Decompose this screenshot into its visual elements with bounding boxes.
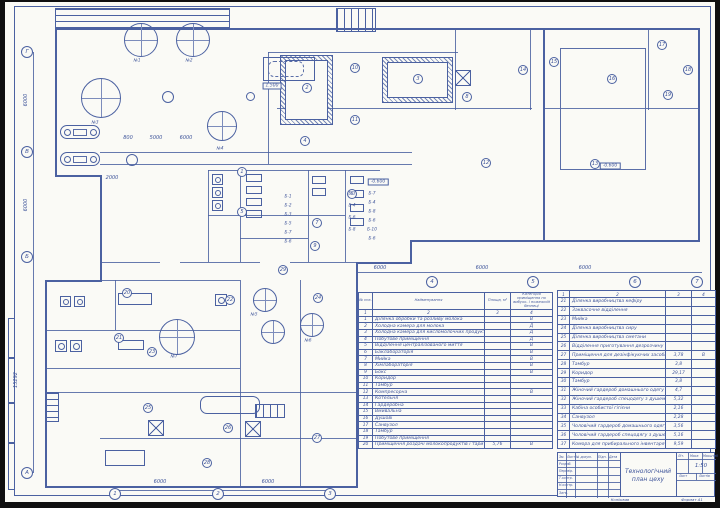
table-cell: 2,28 xyxy=(666,413,692,422)
tank xyxy=(159,319,195,355)
table-cell: Санвузол xyxy=(570,413,666,422)
table-cell: Тамбур xyxy=(570,378,666,387)
scale-label: Масштаб xyxy=(703,454,718,458)
table-cell: Побутове приміщення xyxy=(373,336,485,343)
table-cell: Побутове приміщення xyxy=(373,435,485,442)
stamp-line xyxy=(558,482,620,483)
room-outline xyxy=(560,48,646,170)
table-cell xyxy=(692,333,716,342)
grid-axis-marker: 6 xyxy=(629,276,641,288)
wall-segment xyxy=(180,262,260,263)
table-cell xyxy=(511,422,553,429)
washer xyxy=(212,200,223,211)
table1-body: 1Ділянка обробки та розливу молокаВ2Холо… xyxy=(359,316,553,448)
sheets-label: Листів xyxy=(699,474,710,478)
table-cell: В xyxy=(511,343,553,350)
wall-segment xyxy=(290,262,358,263)
equipment-box xyxy=(350,176,364,184)
data: 5Відділення централізованого миттяВ xyxy=(359,343,553,350)
equipment-tag: Б-3 xyxy=(348,191,355,196)
tank xyxy=(176,23,210,57)
table-cell: 5,76 xyxy=(485,442,511,449)
table-cell xyxy=(692,324,716,333)
sheet-label: Лист xyxy=(679,474,687,478)
table-cell: Вмивальна xyxy=(373,409,485,416)
dimension-label: 6000 xyxy=(154,479,167,485)
eqc xyxy=(63,299,69,305)
stamp-line xyxy=(597,453,598,498)
data: 34Санвузол2,28 xyxy=(558,413,716,422)
grid-axis-marker: 7 xyxy=(691,276,703,288)
room-number-marker: 26 xyxy=(223,423,233,433)
grid-axis-marker: 1 xyxy=(109,488,121,500)
table-cell: 10 xyxy=(359,376,373,383)
equipment-tag: Б-4 xyxy=(368,200,375,205)
table-cell xyxy=(666,342,692,351)
machine-detail xyxy=(73,129,87,136)
table-cell: 2,16 xyxy=(666,404,692,413)
table-cell xyxy=(485,336,511,343)
dimension-line xyxy=(33,52,34,473)
column-number: 1 xyxy=(359,309,373,316)
table-cell xyxy=(485,356,511,363)
table-cell: Гардеробна xyxy=(373,402,485,409)
room-number-marker: 13 xyxy=(590,159,600,169)
column-number: 2 xyxy=(373,309,485,316)
dimension-label: 800 xyxy=(123,135,133,141)
grid-axis-marker: 2 xyxy=(212,488,224,500)
table-cell: 6 xyxy=(359,349,373,356)
grid-axis-marker: А xyxy=(21,467,33,479)
table1-header-cell: № поз. xyxy=(359,293,373,310)
data: 8ХімлабораторіяВ xyxy=(359,362,553,369)
data: 37Комора для прибирального інвентаря9,59 xyxy=(558,440,716,449)
dimension-label: 5000 xyxy=(150,135,163,141)
table-cell xyxy=(485,409,511,416)
table-cell: 16 xyxy=(359,415,373,422)
wall-segment xyxy=(100,280,240,281)
table-cell xyxy=(666,306,692,315)
data: 25Ділянка виробництва сметани xyxy=(558,333,716,342)
data: 33Кабіна особистої гігієни2,16 xyxy=(558,404,716,413)
wall-segment xyxy=(208,215,345,216)
washer xyxy=(70,340,82,352)
wall-segment xyxy=(45,368,240,369)
table1-header: № поз.НайменуванняПлоща, м²Категорія при… xyxy=(359,293,553,317)
wall-segment xyxy=(100,175,102,282)
tank xyxy=(124,23,158,57)
table-cell: В xyxy=(511,369,553,376)
dimension-label: 2000 xyxy=(106,175,119,181)
machine-detail xyxy=(90,156,97,163)
equipment-tank-dashed xyxy=(268,61,304,77)
washer xyxy=(212,187,223,198)
table-cell xyxy=(485,369,511,376)
eqc xyxy=(73,343,80,350)
wall-segment xyxy=(358,262,412,264)
data: 3Холодна камера для кисломолочних продук… xyxy=(359,330,553,337)
data: 18Тамбур xyxy=(359,428,553,435)
washer xyxy=(60,296,71,307)
grid-axis-marker: Б xyxy=(21,251,33,263)
grid-axis-marker: 5 xyxy=(527,276,539,288)
stamp-column-label: Дата xyxy=(609,455,617,459)
table-cell xyxy=(692,413,716,422)
data: 19Побутове приміщення xyxy=(359,435,553,442)
stairs xyxy=(336,8,376,32)
washer xyxy=(212,174,223,185)
room-number-marker: 17 xyxy=(657,40,667,50)
table-cell: Ділянка обробки та розливу молока xyxy=(373,316,485,323)
tr: № поз.НайменуванняПлоща, м²Категорія при… xyxy=(359,293,553,310)
wall-segment xyxy=(208,170,380,171)
table-cell xyxy=(666,333,692,342)
data: 28Тамбур3,8 xyxy=(558,360,716,369)
washer xyxy=(55,340,67,352)
table-cell xyxy=(511,382,553,389)
data: 17Санвузол xyxy=(359,422,553,429)
table-cell: 23 xyxy=(558,315,570,324)
table-cell xyxy=(485,316,511,323)
table-cell: Ділянка виробництва сметани xyxy=(570,333,666,342)
table-cell: В xyxy=(692,351,716,360)
table-cell: 5,16 xyxy=(666,431,692,440)
wall-segment xyxy=(240,238,308,239)
equipment-tag: Б-5 xyxy=(284,221,291,226)
table-cell xyxy=(666,324,692,333)
stamp-line xyxy=(558,475,620,476)
equipment-tag: Б-1 xyxy=(284,194,291,199)
dimension-label: 6000 xyxy=(374,265,387,271)
table-cell: 9,59 xyxy=(666,440,692,449)
room-explication-table-2: 123421Ділянка виробництва кефіру22Заквас… xyxy=(557,290,716,449)
room-number-marker: 1 xyxy=(237,167,247,177)
eqc xyxy=(58,343,65,350)
table-cell xyxy=(692,431,716,440)
room-explication-table-1: № поз.НайменуванняПлоща, м²Категорія при… xyxy=(358,292,553,449)
table-cell: Санвузол xyxy=(373,422,485,429)
column-number: 3 xyxy=(485,309,511,316)
equipment-tag: Б-4 xyxy=(348,203,355,208)
room-number-marker: 12 xyxy=(481,158,491,168)
data: 7МийкаВ xyxy=(359,356,553,363)
room-number-marker: 15 xyxy=(549,57,559,67)
equipment-box xyxy=(246,174,262,182)
frame-side-box xyxy=(8,443,15,490)
table-cell xyxy=(692,298,716,307)
wall-segment xyxy=(115,280,116,330)
equipment-tag: Б-6 xyxy=(368,218,375,223)
room-number-marker: 24 xyxy=(313,293,323,303)
table-cell: Холодна камера для кисломолочних продукт… xyxy=(373,330,485,337)
data: 13Котельня xyxy=(359,395,553,402)
equipment-tag: Б-3 xyxy=(284,212,291,217)
stamp-column-label: Зм. xyxy=(559,455,564,459)
blueprint-photo: 1234567891011121314151617181920212223242… xyxy=(0,0,720,508)
eqc xyxy=(77,299,83,305)
table-cell: 36 xyxy=(558,431,570,440)
room-number-marker: 7 xyxy=(312,218,322,228)
bath-tub xyxy=(200,396,260,414)
table-cell xyxy=(485,382,511,389)
dimension-label: 6000 xyxy=(23,199,29,212)
data: 23Мийка xyxy=(558,315,716,324)
data: 30Тамбур3,8 xyxy=(558,378,716,387)
pump xyxy=(162,91,174,103)
equipment-box xyxy=(246,186,262,194)
table-cell: Жіночий гардероб спецодягу з душем xyxy=(570,395,666,404)
table-cell xyxy=(485,362,511,369)
table-cell: Чоловічий гардероб спецодягу з душем xyxy=(570,431,666,440)
data: 10Коридор xyxy=(359,376,553,383)
table-cell xyxy=(692,369,716,378)
dimension-label: 6000 xyxy=(180,135,193,141)
stamp-line xyxy=(558,489,620,490)
data: 26Відділення приготування дезрозчину xyxy=(558,342,716,351)
table-cell: 3,8 xyxy=(666,378,692,387)
capsule-machine xyxy=(60,125,100,139)
table-cell: 30 xyxy=(558,378,570,387)
equipment-platform xyxy=(263,57,315,81)
room-number-marker: 27 xyxy=(312,433,322,443)
table-cell xyxy=(692,315,716,324)
stamp-line xyxy=(558,467,620,468)
table-cell xyxy=(511,402,553,409)
wall-segment xyxy=(698,28,700,242)
table-cell: 32 xyxy=(558,395,570,404)
stamp-line xyxy=(558,460,620,461)
table-cell xyxy=(485,349,511,356)
table-cell: Тамбур xyxy=(373,428,485,435)
table-cell: Ділянка виробництва сиру xyxy=(570,324,666,333)
column-number: 1 xyxy=(558,291,570,298)
table-cell: 3 xyxy=(359,330,373,337)
table-cell: 21 xyxy=(558,298,570,307)
table-cell xyxy=(511,409,553,416)
equipment-tag: Б-8 xyxy=(368,209,375,214)
dimension-label: 6000 xyxy=(262,479,275,485)
drawing-title: Технологічний план цеху xyxy=(620,453,676,498)
equipment-box xyxy=(312,188,326,196)
table-cell: 37 xyxy=(558,440,570,449)
table-cell: Д xyxy=(511,323,553,330)
table-cell: 22 xyxy=(558,306,570,315)
equipment-tag: Б-6 xyxy=(284,239,291,244)
table-cell xyxy=(692,360,716,369)
table-cell: 31 xyxy=(558,386,570,395)
stamp-column-label: № докум. xyxy=(576,455,592,459)
equipment-box xyxy=(246,210,262,218)
wall-segment xyxy=(45,280,102,282)
table-cell: 3,56 xyxy=(666,422,692,431)
equipment-tag: №1 xyxy=(133,58,140,63)
frame-side-box xyxy=(8,318,15,358)
table-cell xyxy=(485,422,511,429)
wall-segment xyxy=(410,240,412,264)
dimension-line xyxy=(358,272,702,273)
table-cell: В xyxy=(511,349,553,356)
drawing-title-line1: Технологічний xyxy=(625,468,671,476)
table-cell xyxy=(511,435,553,442)
dimension-label: 15292 xyxy=(13,372,19,388)
table-cell xyxy=(511,376,553,383)
table-cell xyxy=(692,378,716,387)
room-number-marker: 8 xyxy=(462,92,472,102)
capsule-machine xyxy=(60,152,100,166)
room-number-marker: 18 xyxy=(683,65,693,75)
column-number: 4 xyxy=(692,291,716,298)
table-cell: 15 xyxy=(359,409,373,416)
table-cell: 7 xyxy=(359,356,373,363)
table-cell: 18 xyxy=(359,428,373,435)
table-cell: 2 xyxy=(359,323,373,330)
wall-segment xyxy=(208,170,209,262)
table-cell: Коридор xyxy=(570,369,666,378)
elevation-mark: -0.600 xyxy=(368,179,389,186)
wall-segment xyxy=(45,280,47,488)
column-number: 2 xyxy=(570,291,666,298)
tank xyxy=(207,111,237,141)
table-cell: 26 xyxy=(558,342,570,351)
grid-axis-marker: 3 xyxy=(324,488,336,500)
stamp-column-label: Підп. xyxy=(598,455,607,459)
tr: 1234 xyxy=(558,291,716,298)
table-cell: 19 xyxy=(359,435,373,442)
table-cell: В xyxy=(511,442,553,449)
table-cell: 24 xyxy=(558,324,570,333)
table-cell: 29,17 xyxy=(666,369,692,378)
table-cell: Д xyxy=(511,336,553,343)
room-number-marker: 10 xyxy=(350,63,360,73)
machine-detail xyxy=(64,129,71,136)
table-cell: Комора для прибирального інвентаря xyxy=(570,440,666,449)
table-cell: 9 xyxy=(359,369,373,376)
table-cell: Д xyxy=(511,330,553,337)
pump xyxy=(126,154,138,166)
table1-header-cell: Площа, м² xyxy=(485,293,511,310)
pump xyxy=(246,92,255,101)
copied-label: Копіював xyxy=(611,497,630,502)
wall-segment xyxy=(308,170,309,262)
data: 29Коридор29,17 xyxy=(558,369,716,378)
table-cell: 11 xyxy=(359,382,373,389)
room-number-marker: 22 xyxy=(225,295,235,305)
frame-side-box xyxy=(8,403,15,443)
table-cell: Компресорна xyxy=(373,389,485,396)
table-cell xyxy=(485,415,511,422)
table-cell: Тамбур xyxy=(570,360,666,369)
table-cell xyxy=(692,342,716,351)
data: 1Ділянка обробки та розливу молокаВ xyxy=(359,316,553,323)
data: 14Гардеробна xyxy=(359,402,553,409)
room-number-marker: 25 xyxy=(143,403,153,413)
table-cell: 13 xyxy=(359,395,373,402)
table-cell: Хімлабораторія xyxy=(373,362,485,369)
wall-segment xyxy=(410,240,700,242)
table-cell: Ділянка виробництва кефіру xyxy=(570,298,666,307)
table-cell xyxy=(692,386,716,395)
room-number-marker: 19 xyxy=(663,90,673,100)
stamp-line xyxy=(676,480,716,481)
lit-label: Літ. xyxy=(678,454,684,458)
column-number: 3 xyxy=(666,291,692,298)
stamp-column-label: Лист xyxy=(567,455,575,459)
data: 21Ділянка виробництва кефіру xyxy=(558,298,716,307)
room-number-marker: 11 xyxy=(350,115,360,125)
table-cell: Баклабораторія xyxy=(373,349,485,356)
table-cell: 5 xyxy=(359,343,373,350)
format-label: Формат А1 xyxy=(681,497,703,502)
column-number: 4 xyxy=(511,309,553,316)
data: 6БаклабораторіяВ xyxy=(359,349,553,356)
table-cell: Душові xyxy=(373,415,485,422)
data: 9БоксВ xyxy=(359,369,553,376)
room-number-marker: 23 xyxy=(147,347,157,357)
data: 31Жіночий гардероб домашнього одягу4,7 xyxy=(558,386,716,395)
equipment-tag: Б-6 xyxy=(368,236,375,241)
table-cell xyxy=(485,389,511,396)
wall-segment xyxy=(55,175,102,177)
table-cell xyxy=(511,428,553,435)
table-cell: 29 xyxy=(558,369,570,378)
table-cell: 28 xyxy=(558,360,570,369)
table1-header-cell: Категорія приміщення по вибухо- і пожежн… xyxy=(511,293,553,310)
stairs xyxy=(45,392,59,422)
equipment-tag: Б-7 xyxy=(368,191,375,196)
room-number-marker: 28 xyxy=(202,458,212,468)
table-cell xyxy=(692,404,716,413)
table-cell: 1 xyxy=(359,316,373,323)
table-cell: 3,8 xyxy=(666,360,692,369)
table-cell: 25 xyxy=(558,333,570,342)
mass-label: Маса xyxy=(690,454,698,458)
shaft-cross-box xyxy=(455,70,471,86)
data: 2Холодна камера для молокаД xyxy=(359,323,553,330)
equipment-tag: №6 xyxy=(304,338,311,343)
table-cell: 35 xyxy=(558,422,570,431)
table-cell xyxy=(485,428,511,435)
equipment-box xyxy=(246,198,262,206)
wall-segment xyxy=(543,28,545,242)
equipment-tag: Б-7 xyxy=(284,230,291,235)
data: 36Чоловічий гардероб спецодягу з душем5,… xyxy=(558,431,716,440)
dimension-label: 6000 xyxy=(579,265,592,271)
grid-axis-marker: В xyxy=(21,146,33,158)
table-cell: В xyxy=(511,356,553,363)
room-number-marker: 3 xyxy=(413,74,423,84)
equipment-tag: Б-10 xyxy=(367,227,377,232)
equipment-tag: Б-2 xyxy=(284,203,291,208)
grid-axis-marker: 4 xyxy=(426,276,438,288)
wall-segment xyxy=(100,152,412,153)
room-number-marker: 20 xyxy=(122,288,132,298)
table-cell: 5,32 xyxy=(666,395,692,404)
stamp-line xyxy=(696,473,697,480)
title-block: Зм.Лист№ докум.Підп.ДатаРозроб.Перевір.Т… xyxy=(557,452,715,497)
table-cell: Заквасочне відділення xyxy=(570,306,666,315)
room-number-marker: 9 xyxy=(310,241,320,251)
data: 4Побутове приміщенняД xyxy=(359,336,553,343)
table-cell xyxy=(485,323,511,330)
dimension-label: 6000 xyxy=(476,265,489,271)
room-number-marker: 29 xyxy=(278,265,288,275)
wall-segment xyxy=(300,392,301,486)
table-cell: Мийка xyxy=(373,356,485,363)
table-cell xyxy=(485,435,511,442)
table-cell xyxy=(485,376,511,383)
room-number-marker: 16 xyxy=(607,74,617,84)
table-cell: Тамбур xyxy=(373,382,485,389)
